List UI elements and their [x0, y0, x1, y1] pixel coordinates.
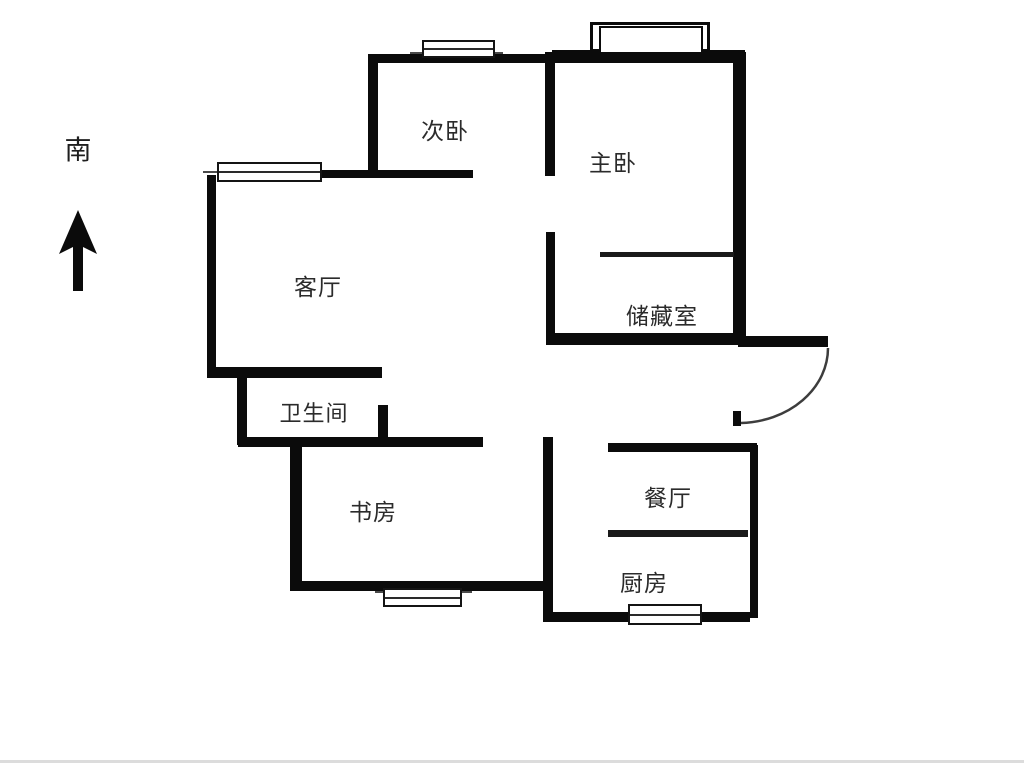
south-arrow-icon: [59, 210, 97, 291]
room-label-bathroom: 卫生间: [279, 396, 348, 428]
room-label-storage: 储藏室: [626, 297, 698, 331]
room-label-dining-room: 餐厅: [644, 479, 692, 513]
room-label-study: 书房: [349, 493, 397, 527]
room-label-living-room: 客厅: [294, 268, 342, 302]
bottom-border-line: [0, 760, 1024, 763]
overlay-graphics: [0, 0, 1024, 768]
compass-south-label: 南: [65, 129, 92, 168]
floor-plan-canvas: 南 次卧 主卧 客厅 储藏室 卫生间 书房 餐厅 厨房: [0, 0, 1024, 768]
entry-door-arc: [741, 348, 828, 423]
room-label-kitchen: 厨房: [620, 564, 668, 598]
room-label-bedroom2: 次卧: [421, 112, 469, 146]
entry-door-leaf: [733, 411, 741, 426]
room-label-master-bedroom: 主卧: [589, 144, 637, 178]
